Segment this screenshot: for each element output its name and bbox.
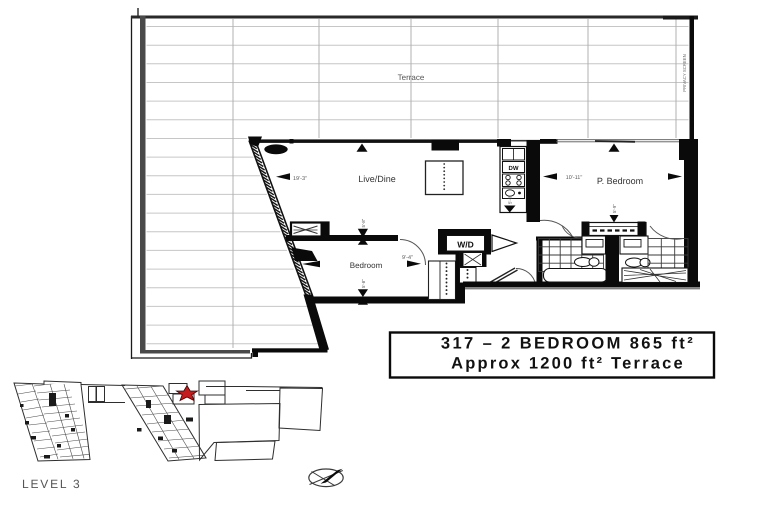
svg-text:5'-9": 5'-9" [612, 204, 617, 213]
svg-text:Bedroom: Bedroom [350, 261, 383, 270]
svg-text:5'-8": 5'-8" [361, 218, 366, 227]
svg-text:Terrace: Terrace [398, 73, 425, 82]
svg-text:W/D: W/D [457, 240, 474, 250]
svg-text:10'-11": 10'-11" [566, 175, 583, 181]
svg-text:317 – 2 BEDROOM 865 ft²: 317 – 2 BEDROOM 865 ft² [441, 335, 695, 353]
svg-text:LEVEL 3: LEVEL 3 [22, 477, 82, 491]
svg-text:5'-0": 5'-0" [508, 195, 513, 204]
svg-text:DW: DW [509, 165, 519, 172]
svg-text:9'-4": 9'-4" [402, 255, 413, 261]
svg-text:Approx 1200 ft² Terrace: Approx 1200 ft² Terrace [451, 355, 685, 373]
svg-text:Live/Dine: Live/Dine [358, 174, 396, 184]
svg-text:P. Bedroom: P. Bedroom [597, 176, 643, 186]
svg-text:19'-3": 19'-3" [293, 176, 307, 182]
svg-text:PRIVACY SCREEN: PRIVACY SCREEN [682, 54, 687, 92]
svg-text:5'-8": 5'-8" [361, 279, 366, 288]
